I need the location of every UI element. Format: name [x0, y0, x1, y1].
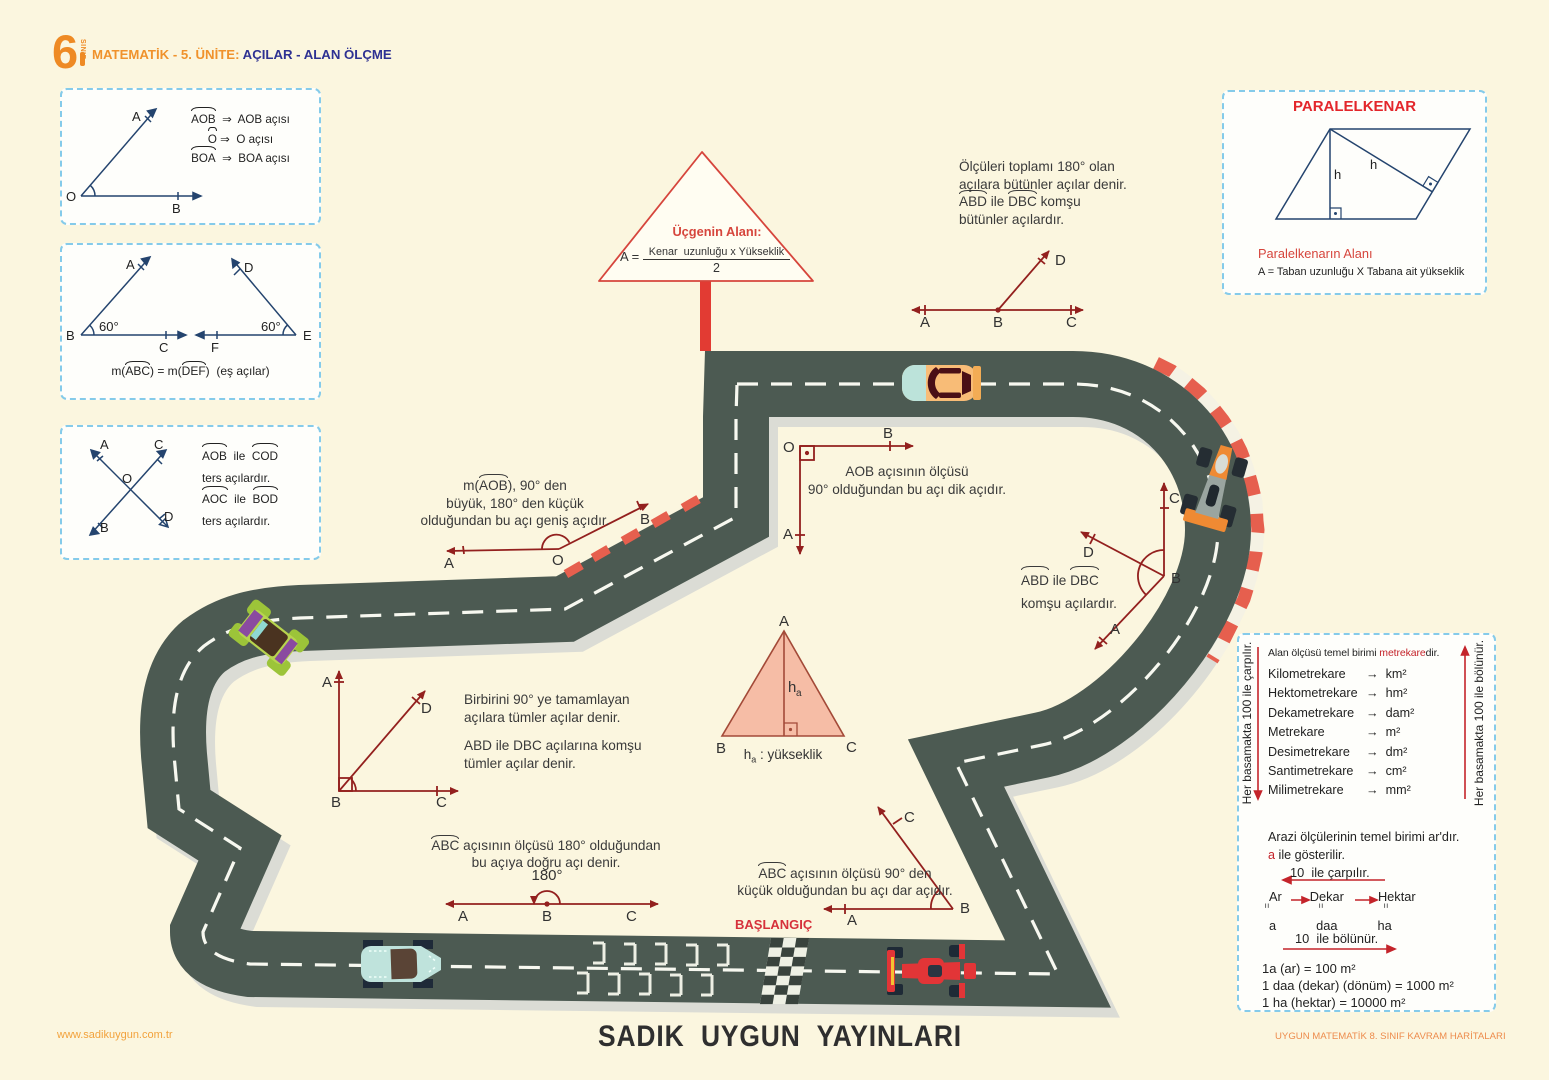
- svg-text:B: B: [66, 328, 75, 343]
- svg-text:A: A: [920, 314, 930, 331]
- svg-text:D: D: [421, 700, 432, 717]
- svg-text:D: D: [164, 509, 173, 524]
- svg-text:B: B: [960, 900, 970, 917]
- svg-text:B: B: [883, 425, 893, 442]
- svg-text:A: A: [458, 908, 468, 925]
- svg-text:B: B: [172, 201, 181, 216]
- svg-text:A: A: [100, 437, 109, 452]
- svg-text:D: D: [244, 260, 253, 275]
- svg-text:A: A: [847, 912, 857, 929]
- svg-text:B: B: [1171, 570, 1181, 587]
- svg-text:O: O: [66, 189, 76, 204]
- svg-text:B: B: [640, 511, 650, 528]
- svg-text:h: h: [1334, 167, 1341, 182]
- svg-text:C: C: [1169, 490, 1180, 507]
- svg-text:C: C: [159, 340, 168, 355]
- svg-text:F: F: [211, 340, 219, 355]
- svg-text:O: O: [783, 439, 795, 456]
- svg-text:h: h: [1370, 157, 1377, 172]
- svg-text:B: B: [542, 908, 552, 925]
- svg-text:A: A: [1110, 621, 1120, 638]
- svg-text:D: D: [1083, 544, 1094, 561]
- svg-text:A: A: [783, 526, 793, 543]
- svg-text:C: C: [154, 437, 163, 452]
- svg-text:A: A: [126, 257, 135, 272]
- svg-text:C: C: [626, 908, 637, 925]
- svg-text:E: E: [303, 328, 312, 343]
- svg-text:D: D: [1055, 252, 1066, 269]
- svg-text:A: A: [322, 674, 332, 691]
- svg-text:A: A: [779, 613, 789, 630]
- svg-text:C: C: [1066, 314, 1077, 331]
- svg-text:a: a: [796, 688, 802, 699]
- svg-text:B: B: [100, 520, 109, 535]
- svg-text:O: O: [122, 471, 132, 486]
- svg-text:60°: 60°: [261, 319, 281, 334]
- svg-text:O: O: [552, 552, 564, 569]
- svg-text:C: C: [436, 794, 447, 811]
- svg-text:A: A: [132, 109, 141, 124]
- svg-text:A: A: [444, 555, 454, 572]
- svg-text:B: B: [331, 794, 341, 811]
- svg-text:C: C: [904, 809, 915, 826]
- svg-text:60°: 60°: [99, 319, 119, 334]
- svg-text:B: B: [993, 314, 1003, 331]
